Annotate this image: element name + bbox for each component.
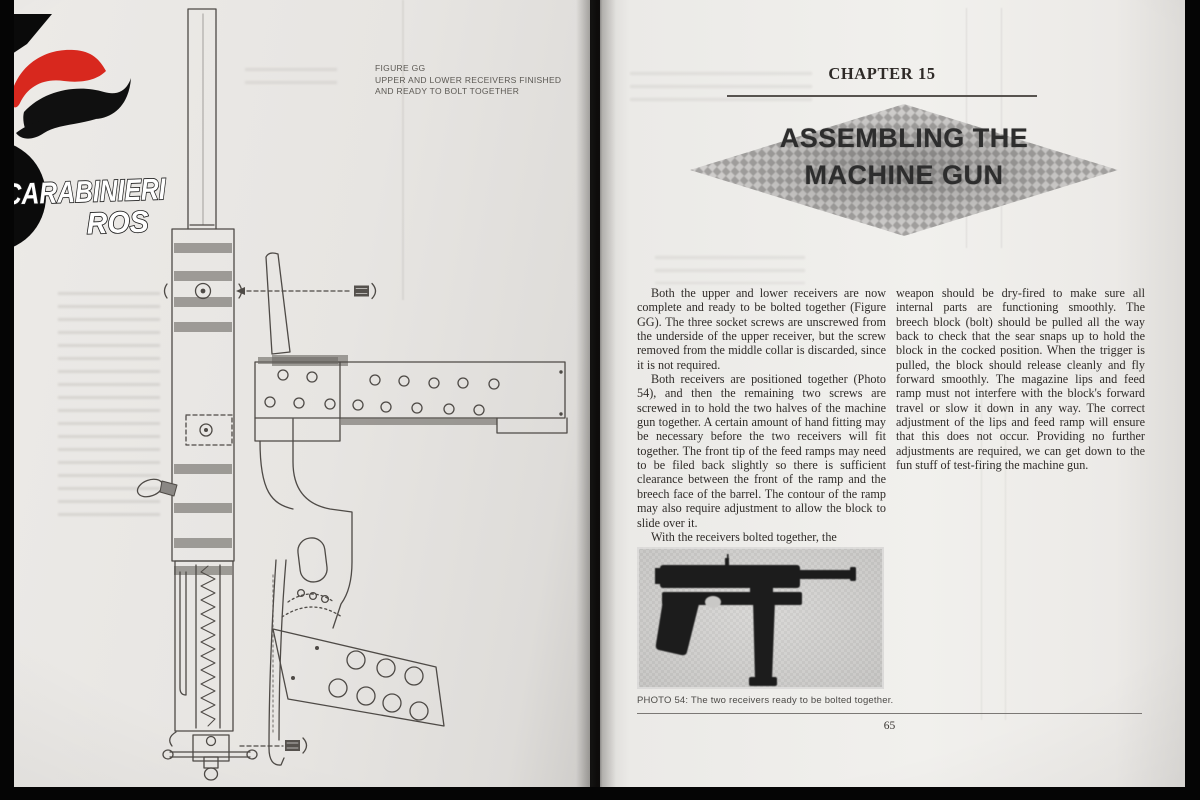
screen-edge-left <box>0 0 14 800</box>
chapter-title-line: MACHINE GUN <box>690 157 1118 194</box>
logo-text-ros: ROS <box>86 206 149 241</box>
screen-edge-right <box>1185 0 1200 800</box>
body-column-2: weapon should be dry-fired to make sure … <box>896 286 1145 472</box>
chapter-heading: CHAPTER 15 <box>727 64 1037 84</box>
chapter-title-line: ASSEMBLING THE <box>690 120 1118 157</box>
paragraph: With the receivers bolted together, the <box>637 530 886 544</box>
body-column-1: Both the upper and lower receivers are n… <box>637 286 886 544</box>
paragraph: Both the upper and lower receivers are n… <box>637 286 886 372</box>
footer-rule <box>637 713 1142 714</box>
photo-54 <box>637 547 884 689</box>
carabinieri-ros-watermark: CARABINIERI ROS <box>0 14 220 254</box>
scanned-book-spread: FIGURE GG UPPER AND LOWER RECEIVERS FINI… <box>0 0 1200 800</box>
chapter-rule <box>727 95 1037 97</box>
gun-silhouette <box>637 547 884 689</box>
page-number: 65 <box>637 720 1142 732</box>
screen-edge-bottom <box>0 787 1200 800</box>
paragraph: Both receivers are positioned together (… <box>637 372 886 530</box>
chapter-title: ASSEMBLING THE MACHINE GUN <box>690 120 1118 194</box>
photo-caption: PHOTO 54: The two receivers ready to be … <box>637 695 1037 706</box>
paragraph: weapon should be dry-fired to make sure … <box>896 286 1145 472</box>
